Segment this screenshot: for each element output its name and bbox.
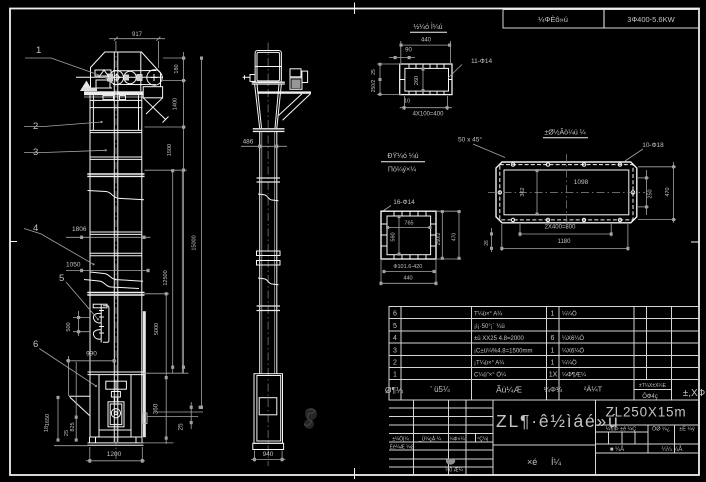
- svg-text:2: 2: [393, 360, 397, 367]
- svg-text:5: 5: [393, 323, 397, 330]
- svg-text:¼Φ¼: ¼Φ¼: [544, 385, 563, 394]
- svg-text:825: 825: [70, 422, 76, 431]
- svg-text:1500: 1500: [167, 144, 173, 156]
- svg-text:2Χ400=800: 2Χ400=800: [545, 225, 577, 231]
- svg-text:16-Ф14: 16-Ф14: [393, 199, 415, 206]
- svg-text:940: 940: [263, 451, 274, 458]
- svg-text:ZL¶·ê½ìáé»ú: ZL¶·ê½ìáé»ú: [496, 411, 620, 431]
- svg-text:¼¼ ¼Å: ¼¼ ¼Å: [662, 446, 683, 453]
- svg-text:¼ΦÈô»ú: ¼ΦÈô»ú: [538, 15, 568, 24]
- svg-text:²Ä¼Τ: ²Ä¼Τ: [584, 385, 603, 394]
- svg-text:470: 470: [452, 233, 458, 242]
- svg-text:5: 5: [59, 273, 64, 284]
- svg-text:440: 440: [403, 276, 412, 282]
- svg-text:26: 26: [484, 240, 490, 246]
- svg-text:1: 1: [393, 372, 397, 379]
- svg-text:Í¼: Í¼: [551, 457, 562, 467]
- svg-text:3: 3: [393, 347, 397, 354]
- svg-text:990: 990: [86, 351, 97, 358]
- svg-text:T¼ü×° A¼: T¼ü×° A¼: [474, 312, 503, 318]
- svg-text:4: 4: [393, 335, 397, 342]
- svg-text:260: 260: [414, 76, 420, 85]
- svg-text:ZL250X15m: ZL250X15m: [606, 405, 687, 420]
- svg-text:1180: 1180: [558, 239, 572, 245]
- svg-text:Ø¶¼: Ø¶¼: [385, 385, 404, 395]
- svg-text:500: 500: [66, 322, 72, 331]
- svg-text:11-Ф14: 11-Ф14: [471, 58, 492, 65]
- svg-text:Πò¼ý×¼: Πò¼ý×¼: [388, 167, 416, 174]
- svg-text:ÔФ4ç: ÔФ4ç: [642, 393, 658, 400]
- svg-text:440: 440: [421, 38, 432, 44]
- svg-text:1Χ: 1Χ: [549, 372, 558, 379]
- svg-text:180: 180: [174, 64, 180, 73]
- svg-text:1: 1: [551, 360, 555, 367]
- svg-text:¡C±ü¼%4.8=1500mm: ¡C±ü¼%4.8=1500mm: [474, 348, 533, 354]
- svg-text:½¼ó Ì¼ú: ½¼ó Ì¼ú: [413, 22, 442, 31]
- svg-text:±T¼X±X¼E: ±T¼X±X¼E: [639, 383, 667, 389]
- svg-text:¼¼Ö: ¼¼Ö: [562, 360, 577, 367]
- svg-text:25: 25: [371, 69, 377, 75]
- svg-text:¼Χ6¼Ö: ¼Χ6¼Ö: [562, 335, 584, 342]
- svg-text:5000: 5000: [154, 323, 160, 335]
- svg-text:Ф101.6-420: Ф101.6-420: [393, 264, 422, 270]
- svg-text:50 x 45°: 50 x 45°: [458, 136, 482, 144]
- svg-text:ÐΫ¼ó ¼ú: ÐΫ¼ó ¼ú: [387, 152, 418, 160]
- svg-text:12500: 12500: [163, 270, 169, 285]
- svg-text:Ãü¼Æ: Ãü¼Æ: [496, 385, 522, 395]
- svg-text:360: 360: [153, 403, 160, 414]
- svg-text:4X100=400: 4X100=400: [413, 112, 445, 118]
- svg-text:±È ¼ý: ±È ¼ý: [679, 425, 695, 432]
- svg-text:¼Χ6¼Ö: ¼Χ6¼Ö: [562, 347, 584, 354]
- svg-text:1050: 1050: [66, 262, 81, 269]
- svg-text:1098: 1098: [574, 179, 589, 186]
- svg-text:362: 362: [520, 187, 526, 196]
- svg-text:90: 90: [405, 48, 412, 54]
- svg-text:765: 765: [404, 221, 413, 227]
- svg-text:¼Φ×¼: ¼Φ×¼: [449, 437, 465, 443]
- svg-text:6: 6: [393, 311, 397, 318]
- svg-text:1: 1: [551, 347, 555, 354]
- svg-text:1: 1: [36, 45, 41, 56]
- svg-text:6: 6: [551, 335, 555, 342]
- svg-text:3Ф400-5.6ΚW: 3Ф400-5.6ΚW: [627, 15, 675, 24]
- svg-text:250/2: 250/2: [371, 80, 377, 93]
- svg-text:¼0 Æ¼: ¼0 Æ¼: [445, 468, 463, 474]
- svg-text:±Ø½Âò¼ú ¼: ±Ø½Âò¼ú ¼: [544, 128, 585, 137]
- svg-text:917: 917: [132, 32, 143, 38]
- svg-text:18: 18: [44, 426, 50, 432]
- svg-text:¡T¼ü×° A¼: ¡T¼ü×° A¼: [474, 361, 505, 367]
- svg-text:15000: 15000: [192, 235, 198, 250]
- svg-text:1806: 1806: [72, 226, 87, 233]
- svg-text:486: 486: [243, 139, 254, 146]
- svg-text:1650: 1650: [45, 414, 51, 426]
- svg-text:¼¼Ö: ¼¼Ö: [562, 311, 577, 318]
- svg-text:C¼ü"×° Ö¼: C¼ü"×° Ö¼: [474, 372, 507, 379]
- svg-text:25: 25: [178, 423, 185, 431]
- svg-text:■ ¼Å: ■ ¼Å: [610, 446, 624, 453]
- svg-text:¼Φ¶Æ¼: ¼Φ¶Æ¼: [562, 373, 587, 379]
- svg-text:_Ù¼çÅ·¼: _Ù¼çÅ·¼: [418, 436, 442, 443]
- svg-text:Éè¼Æ ¼Ø: Éè¼Æ ¼Ø: [390, 444, 415, 451]
- svg-text:1400: 1400: [173, 98, 179, 110]
- svg-text:' ü5¼: ' ü5¼: [430, 385, 450, 394]
- svg-text:250/2: 250/2: [436, 233, 442, 246]
- svg-text:¼¶ÎÞ ±ê ¼Ç: ¼¶ÎÞ ±ê ¼Ç: [606, 425, 636, 432]
- svg-text:560: 560: [391, 232, 397, 241]
- svg-text:470: 470: [665, 187, 671, 196]
- svg-text:10-Ф18: 10-Ф18: [642, 142, 664, 149]
- svg-text:6: 6: [33, 339, 38, 350]
- svg-text:250: 250: [648, 189, 654, 198]
- svg-text:×é: ×é: [527, 457, 537, 467]
- svg-text:¡ì¡·50°¡´ ¼ü: ¡ì¡·50°¡´ ¼ü: [474, 324, 505, 330]
- svg-text:1200: 1200: [107, 451, 122, 458]
- svg-text:25: 25: [64, 430, 70, 436]
- svg-text:±¼Ö|¼: ±¼Ö|¼: [392, 436, 409, 443]
- svg-text:±,XФ: ±,XФ: [683, 388, 706, 399]
- svg-text:ÖØ ¼¿: ÖØ ¼¿: [652, 425, 670, 432]
- svg-text:±ü ΧΧ25 4.8=2000: ±ü ΧΧ25 4.8=2000: [474, 336, 524, 342]
- svg-text:1: 1: [551, 311, 555, 318]
- svg-text:ºÇ¼|: ºÇ¼|: [478, 437, 489, 443]
